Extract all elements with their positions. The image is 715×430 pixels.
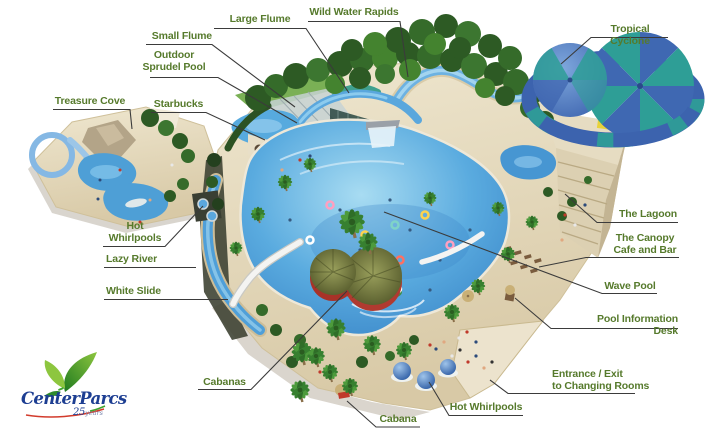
label-small-flume: Small Flume	[118, 31, 212, 43]
leader-wild-water-rapids	[308, 22, 408, 78]
label-wild-water-rapids: Wild Water Rapids	[306, 7, 402, 19]
label-hot-whirlpools-right: Hot Whirlpools	[449, 402, 523, 414]
label-white-slide: White Slide	[106, 286, 196, 298]
label-pool-information-desk: Pool Information Desk	[576, 314, 678, 337]
leader-lines	[0, 0, 715, 430]
label-wave-pool: Wave Pool	[600, 281, 660, 293]
centerparcs-logo-wordmark: CenterParcs	[21, 389, 121, 408]
label-treasure-cove: Treasure Cove	[48, 96, 132, 108]
label-hot-whirlpools-left: Hot Whirlpools	[104, 221, 166, 244]
park-map: Small Flume Outdoor Sprudel Pool Large F…	[0, 0, 715, 430]
anniversary-number: 25	[73, 407, 85, 418]
label-tropical-cyclone: Tropical Cyclone	[590, 24, 670, 47]
label-the-lagoon: The Lagoon	[618, 209, 678, 221]
label-large-flume: Large Flume	[214, 14, 306, 26]
leader-starbucks	[151, 113, 265, 141]
label-cabana: Cabana	[374, 414, 422, 426]
leader-cabanas	[198, 291, 347, 390]
label-canopy-cafe-bar: The Canopy Cafe and Bar	[610, 233, 680, 256]
leader-treasure-cove	[53, 110, 132, 130]
leader-canopy-cafe-bar	[539, 258, 679, 268]
label-cabanas: Cabanas	[197, 377, 252, 389]
label-outdoor-sprudel-pool: Outdoor Sprudel Pool	[128, 50, 220, 73]
label-entrance-exit: Entrance / Exit to Changing Rooms	[552, 369, 656, 392]
label-lazy-river: Lazy River	[106, 254, 196, 266]
label-starbucks: Starbucks	[150, 99, 207, 111]
logo-anniversary: 25years	[73, 407, 103, 418]
anniversary-word: years	[85, 409, 103, 417]
